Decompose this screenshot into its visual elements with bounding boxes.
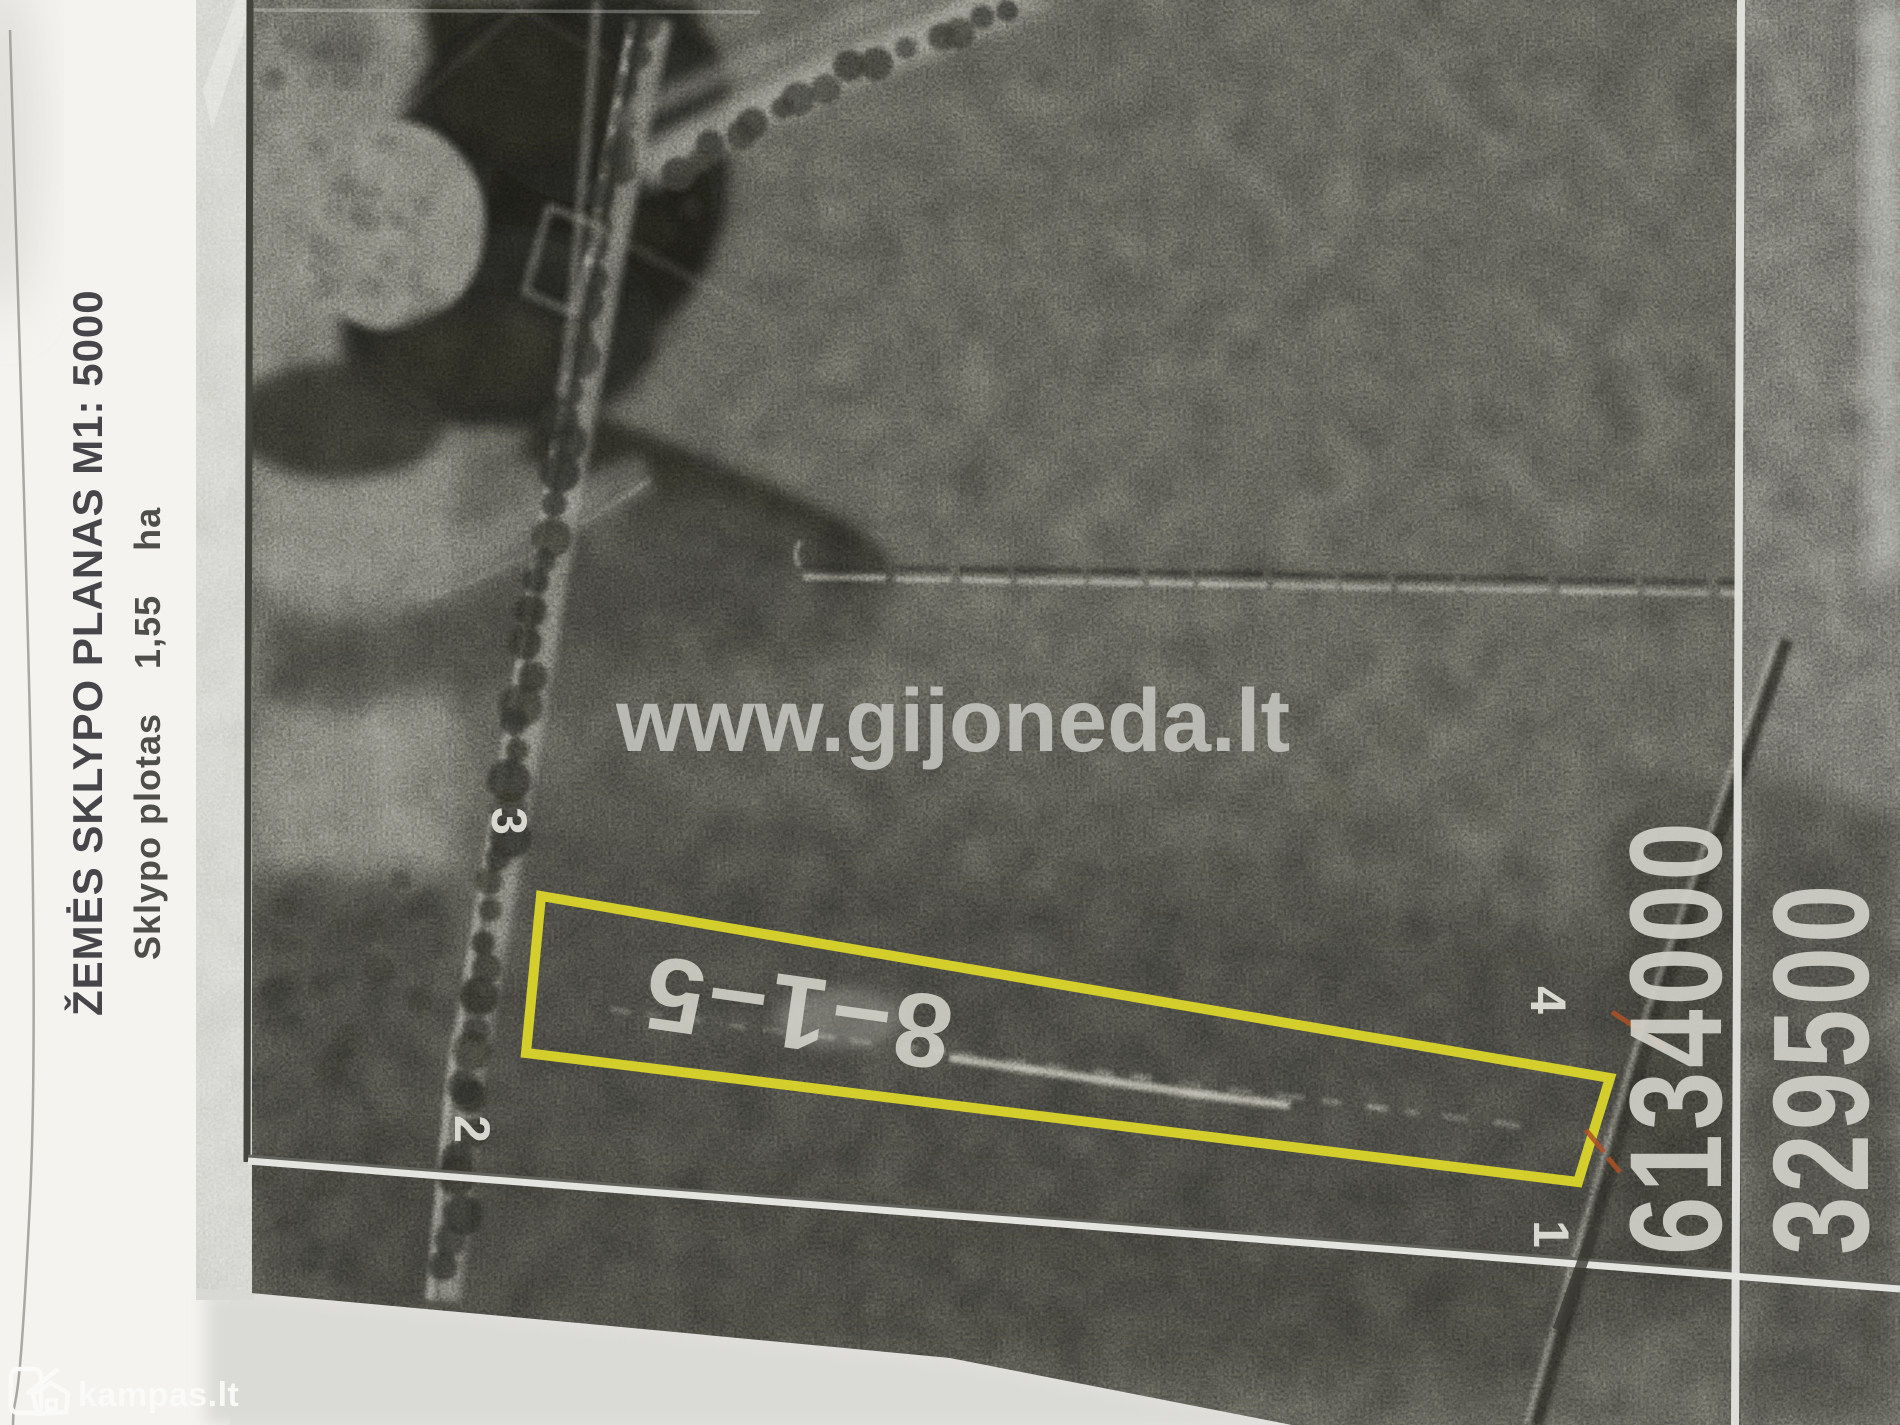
svg-text:329500: 329500 (1745, 881, 1897, 1255)
svg-text:kampas.lt: kampas.lt (78, 1376, 239, 1414)
svg-text:4: 4 (1520, 986, 1576, 1014)
svg-text:3: 3 (481, 807, 537, 835)
svg-text:2: 2 (444, 1115, 500, 1143)
svg-text:www.gijoneda.lt: www.gijoneda.lt (615, 670, 1290, 770)
svg-text:1: 1 (1523, 1220, 1579, 1248)
svg-text:ŽEMĖS SKLYPO PLANAS M1: 5000: ŽEMĖS SKLYPO PLANAS M1: 5000 (63, 289, 111, 1016)
svg-text:6134000: 6134000 (1603, 818, 1750, 1255)
svg-text:Sklypo plotas 1,55 ha: Sklypo plotas 1,55 ha (127, 507, 168, 960)
